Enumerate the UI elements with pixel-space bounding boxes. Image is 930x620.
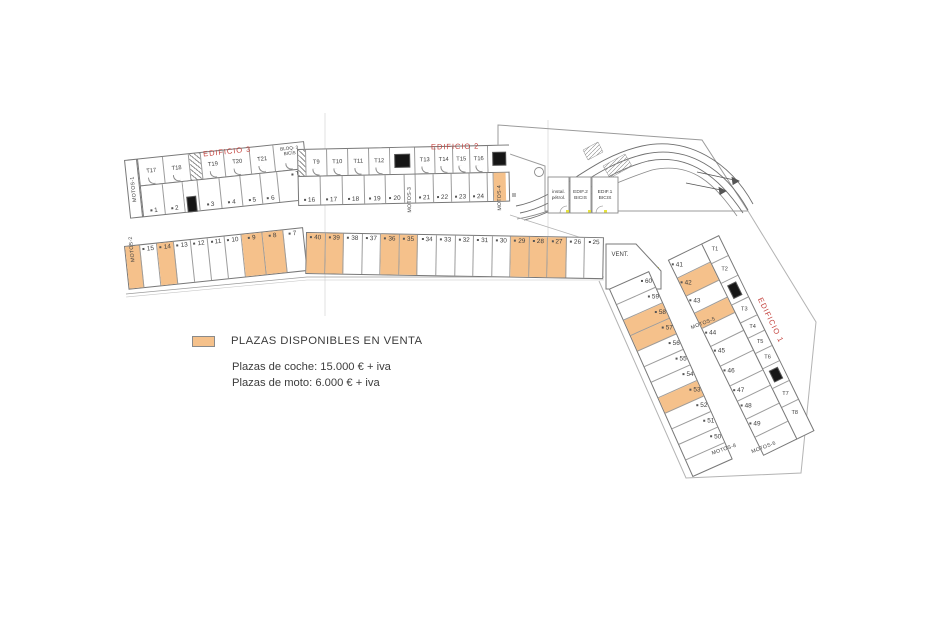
parking-space-label: 55 — [676, 356, 687, 363]
building2-title: EDIFICIO 2 — [431, 142, 479, 152]
parking-space-label: 34 — [421, 236, 432, 243]
motos1-label: MOTOS-1 — [129, 176, 138, 202]
parking-space-label: 18 — [348, 196, 359, 203]
parking-space-label: 36 — [384, 235, 395, 242]
parking-space-label: 22 — [437, 194, 448, 201]
parking-space-label: 45 — [714, 348, 725, 355]
storage-room-label: T15 — [456, 156, 466, 162]
edif1-bicis-label: EDIF.1 — [598, 189, 613, 195]
parking-space-label: 57 — [662, 324, 673, 331]
parking-space: 30 — [492, 236, 511, 276]
parking-space: 33 — [436, 235, 455, 275]
parking-space-label: 12 — [193, 240, 205, 248]
parking-space-label: 42 — [681, 279, 692, 286]
parking-space-label: 9 — [248, 234, 256, 242]
edif2-bicis-label2: BICIS — [574, 195, 588, 201]
parking-space-label: 13 — [176, 241, 188, 249]
parking-space-label: 3 — [207, 201, 215, 209]
parking-space: 38 — [343, 234, 362, 274]
storage-room-label: T18 — [171, 165, 182, 172]
parking-space-label: 59 — [648, 293, 659, 300]
aisle-line — [126, 280, 604, 297]
parking-space-label: 38 — [347, 235, 358, 242]
parking-space-label: 26 — [570, 239, 581, 246]
storage-room-label: T3 — [741, 307, 748, 313]
storage-room-label: T4 — [749, 324, 756, 330]
storage-room: T12 — [369, 148, 391, 174]
parking-strip-right: 40393837363534333231302928272625 — [305, 232, 604, 279]
parking-space-label: 15 — [143, 245, 155, 253]
parking-space-label: 51 — [703, 418, 714, 425]
parking-space-label: 53 — [689, 387, 700, 394]
parking-space-label: 4 — [228, 199, 236, 207]
storage-room-label: T21 — [257, 156, 268, 163]
parking-space-label: 32 — [459, 237, 470, 244]
edif2-bicis-label: EDIF.2 — [573, 189, 588, 195]
parking-space-label: 25 — [588, 239, 599, 246]
storage-room-label: T1 — [712, 247, 719, 253]
storage-room: T9 — [306, 149, 328, 175]
storage-room-label: T12 — [374, 158, 384, 164]
parking-space-label: 7 — [289, 230, 297, 238]
parking-space-label: 58 — [655, 309, 666, 316]
storage-room-label: T20 — [232, 159, 243, 166]
storage-room-label: T19 — [208, 161, 219, 168]
parking-space-label: 37 — [366, 235, 377, 242]
parking-space: 16 — [299, 177, 322, 205]
parking-space-label: 11 — [210, 238, 221, 246]
parking-space: 17 — [321, 176, 344, 204]
parking-space-label: 27 — [551, 238, 562, 245]
parking-space-label: 19 — [369, 195, 380, 202]
parking-space-label: 52 — [696, 402, 707, 409]
parking-space: 21 — [416, 174, 435, 202]
parking-space-label: 23 — [455, 193, 466, 200]
storage-room: T18 — [163, 154, 192, 183]
parking-space-label: 41 — [672, 261, 683, 268]
parking-row: 1617181920MOTOS-321222324MOTOS-4 — [298, 172, 511, 206]
parking-space: 40 — [306, 233, 325, 273]
plan-linework: instal. pétrol. EDIF.2 BICIS EDIF.1 BICI… — [0, 0, 930, 620]
parking-space-label: 35 — [403, 236, 414, 243]
parking-space: 34 — [418, 235, 437, 275]
floor-plan: instal. pétrol. EDIF.2 BICIS EDIF.1 BICI… — [0, 0, 930, 620]
storage-room-label: T9 — [313, 160, 320, 166]
edif1-bicis-label2: BICIS — [599, 195, 613, 201]
storage-room-label: T10 — [332, 159, 342, 165]
legend-title: PLAZAS DISPONIBLES EN VENTA — [231, 335, 422, 347]
parking-space-label: 20 — [389, 195, 400, 202]
parking-space-label: 33 — [440, 236, 451, 243]
parking-space-label: 21 — [419, 194, 430, 201]
storage-room-label: T2 — [721, 266, 728, 272]
parking-space: 27 — [548, 237, 567, 277]
instal-room-label: instal. — [552, 189, 565, 195]
moto-parking-strip: MOTOS-3 — [405, 175, 417, 203]
parking-space: 22 — [434, 174, 453, 202]
parking-space: 31 — [473, 236, 492, 276]
elevator-core — [488, 146, 511, 172]
parking-space-label: 2 — [171, 205, 179, 213]
parking-space-label: 47 — [733, 387, 744, 394]
parking-space-label: 40 — [310, 234, 321, 241]
parking-space-label: 49 — [749, 420, 760, 427]
moto-parking-strip: MOTOS-4 — [494, 173, 507, 201]
instal-room-label2: pétrol. — [552, 195, 566, 201]
parking-space: 25 — [585, 238, 603, 278]
parking-space: 29 — [510, 237, 529, 277]
parking-space-label: 60 — [641, 278, 652, 285]
parking-space-label: 24 — [473, 193, 484, 200]
storage-room-label: T7 — [782, 391, 789, 397]
parking-row: 40393837363534333231302928272625 — [305, 232, 604, 279]
legend: PLAZAS DISPONIBLES EN VENTA Plazas de co… — [192, 335, 422, 391]
column-marker — [512, 193, 516, 197]
parking-space: 3 — [198, 178, 223, 210]
parking-space-label: 56 — [669, 340, 680, 347]
parking-space: 37 — [362, 234, 381, 274]
storage-room-label: T16 — [474, 156, 484, 162]
moto-parking-strip-label: MOTOS-4 — [497, 185, 504, 211]
parking-space-label: 50 — [710, 433, 721, 440]
parking-space-label: 28 — [533, 238, 544, 245]
parking-space-label: 48 — [741, 402, 752, 409]
legend-price-coche: Plazas de coche: 15.000 € + iva — [232, 360, 422, 376]
parking-space-label: 10 — [227, 236, 239, 244]
storage-room-label: T17 — [146, 168, 157, 175]
parking-space-label: 30 — [496, 237, 507, 244]
vent-room-label: VENT. — [611, 252, 628, 258]
available-color-swatch — [192, 336, 215, 347]
storage-room: T17 — [138, 157, 166, 185]
parking-space: 18 — [343, 176, 366, 204]
parking-space: 23 — [452, 173, 471, 201]
parking-space-label: 31 — [477, 237, 488, 244]
storage-room: T21 — [249, 145, 276, 173]
parking-space-label: 39 — [329, 234, 340, 241]
parking-space: 39 — [325, 233, 344, 273]
parking-space: 36 — [381, 234, 400, 274]
parking-space-label: 46 — [724, 367, 735, 374]
parking-space: 1 — [141, 184, 166, 216]
parking-space-label: 6 — [267, 194, 275, 202]
parking-space-label: 54 — [682, 371, 693, 378]
parking-space: 32 — [455, 236, 474, 276]
parking-space-label: 8 — [269, 232, 277, 240]
parking-space: 26 — [566, 238, 585, 278]
parking-space-label: 1 — [150, 207, 158, 215]
parking-space: 28 — [529, 237, 548, 277]
ramp-hatch — [583, 142, 603, 160]
parking-space-label: 14 — [159, 243, 171, 251]
parking-space: 35 — [399, 235, 418, 275]
ramp-arrows — [686, 172, 739, 195]
parking-space: 19 — [365, 175, 387, 203]
elevator-core — [390, 148, 416, 175]
parking-space-label: 16 — [304, 197, 315, 204]
parking-space-label: 17 — [326, 196, 337, 203]
parking-space: 24 — [470, 173, 489, 201]
storage-room-label: T6 — [764, 354, 771, 360]
storage-room-label: T11 — [353, 159, 363, 165]
parking-space-label: 43 — [689, 297, 700, 304]
legend-price-moto: Plazas de moto: 6.000 € + iva — [232, 376, 422, 392]
moto-parking-strip-label: MOTOS-3 — [407, 187, 414, 213]
parking-space-label: 29 — [514, 238, 525, 245]
building-edificio-2: T9T10T11T12T13T14T15T16 1617181920MOTOS-… — [297, 145, 510, 206]
storage-room-label: T5 — [757, 339, 764, 345]
storage-room-label: T8 — [792, 410, 799, 416]
parking-space-label: 44 — [705, 330, 716, 337]
parking-space: 20 — [386, 175, 406, 203]
parking-space: 7 — [283, 228, 305, 272]
parking-space-label: 5 — [248, 196, 256, 204]
storage-room-label: T14 — [439, 157, 449, 163]
storage-room-label: T13 — [420, 157, 430, 163]
storage-room: T11 — [348, 148, 370, 174]
storage-room: T10 — [327, 149, 349, 175]
ramp-hatch — [603, 154, 632, 178]
